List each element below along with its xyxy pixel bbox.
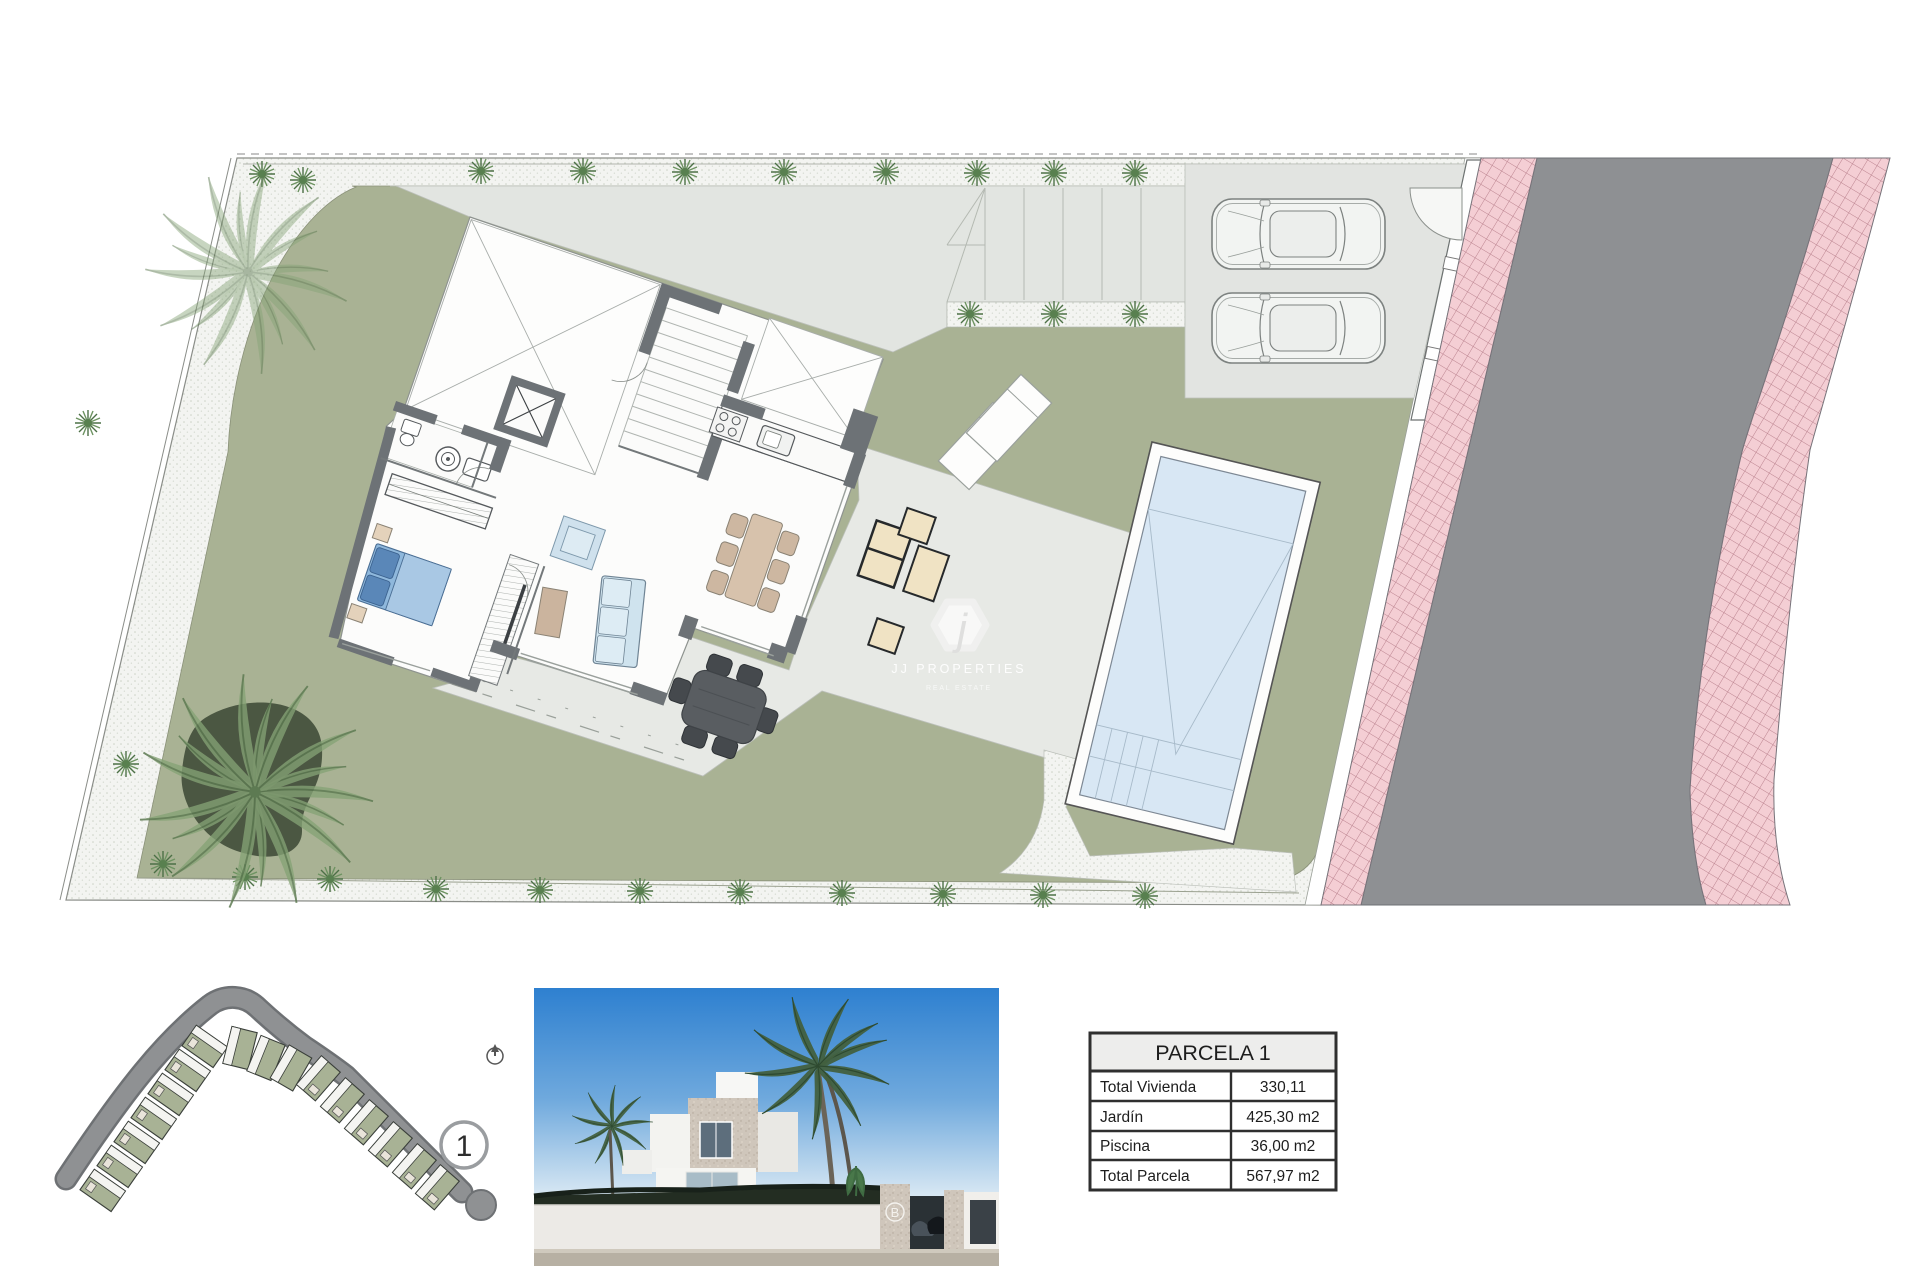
- svg-text:330,11: 330,11: [1260, 1079, 1306, 1096]
- svg-text:PARCELA 1: PARCELA 1: [1155, 1041, 1271, 1065]
- svg-text:Piscina: Piscina: [1100, 1138, 1150, 1155]
- svg-text:REAL ESTATE: REAL ESTATE: [926, 685, 992, 692]
- svg-text:425,30 m2: 425,30 m2: [1246, 1109, 1319, 1126]
- svg-text:1: 1: [456, 1130, 473, 1163]
- svg-text:JJ PROPERTIES: JJ PROPERTIES: [891, 662, 1026, 676]
- svg-text:36,00 m2: 36,00 m2: [1251, 1138, 1316, 1155]
- svg-text:Jardín: Jardín: [1100, 1109, 1143, 1126]
- svg-text:Total Parcela: Total Parcela: [1100, 1168, 1190, 1185]
- svg-text:B: B: [891, 1205, 900, 1220]
- svg-text:567,97 m2: 567,97 m2: [1246, 1168, 1319, 1185]
- svg-text:Total Vivienda: Total Vivienda: [1100, 1079, 1197, 1096]
